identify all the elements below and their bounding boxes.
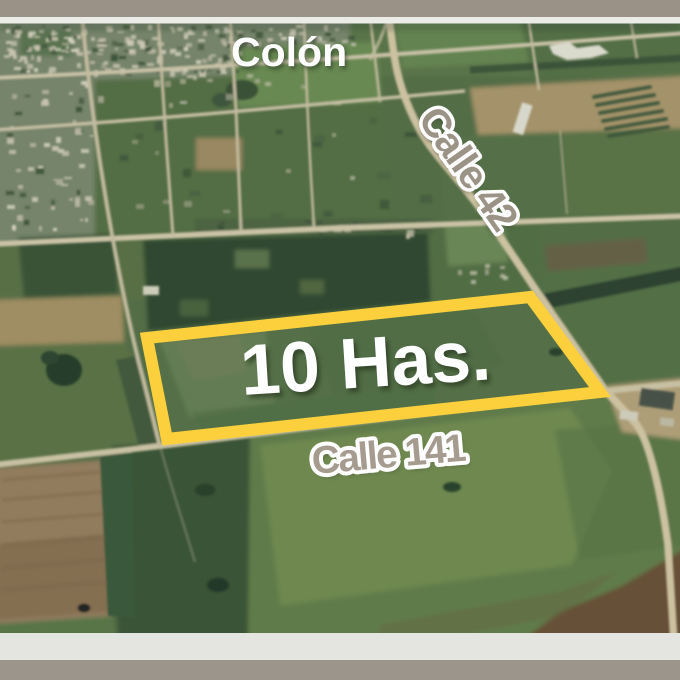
svg-text:10 Has.: 10 Has. (238, 315, 493, 411)
svg-text:Colón: Colón (231, 29, 347, 75)
